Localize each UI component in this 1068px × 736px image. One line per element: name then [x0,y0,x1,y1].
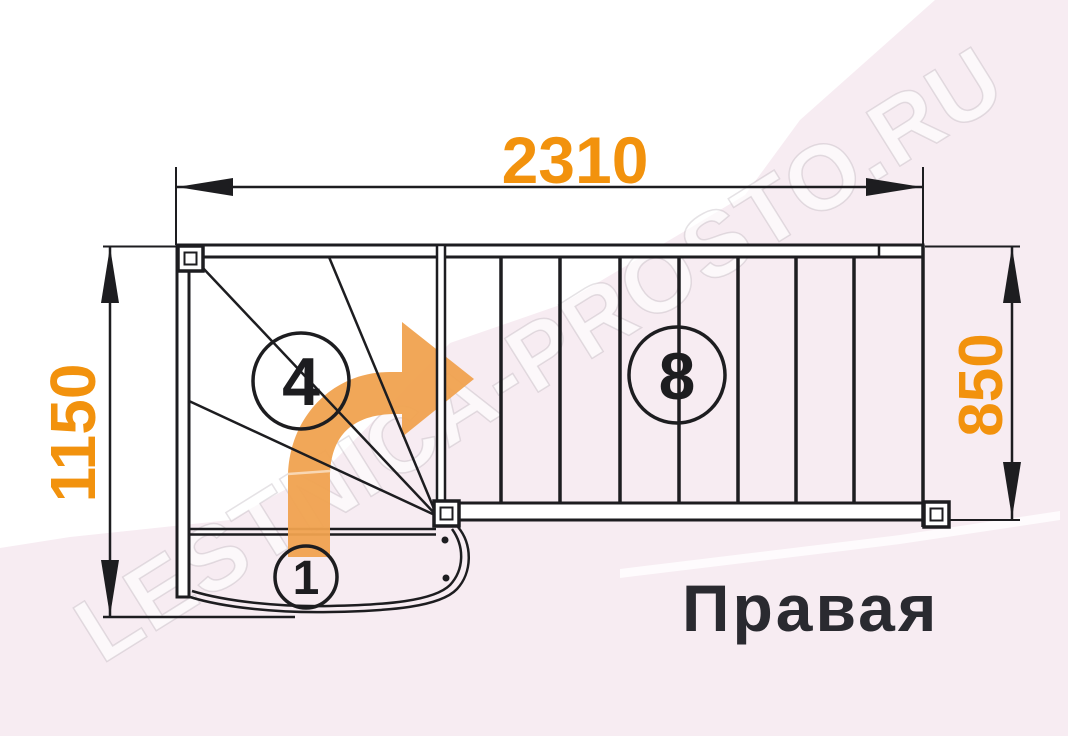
bottom-stringer [458,503,924,520]
stair-plan-diagram: LESTNICA-PROSTO.RU [0,0,1068,736]
newel-post-center [434,501,459,526]
newel-post-bottom-right [924,502,949,527]
winder-flight-divider [437,245,445,505]
straight-count-value: 8 [659,339,696,413]
left-stringer [177,246,189,597]
newel-post-top-left [178,246,203,271]
winder-count-value: 4 [282,344,320,420]
baluster-dots [442,537,450,582]
top-stringer [177,245,923,257]
dimension-left [101,246,295,617]
orientation-label: Правая [682,570,939,646]
dimension-right-value: 850 [947,333,1016,436]
dimension-left-value: 1150 [37,364,109,503]
first-step-value: 1 [293,552,320,605]
dimension-top-value: 2310 [502,123,649,197]
